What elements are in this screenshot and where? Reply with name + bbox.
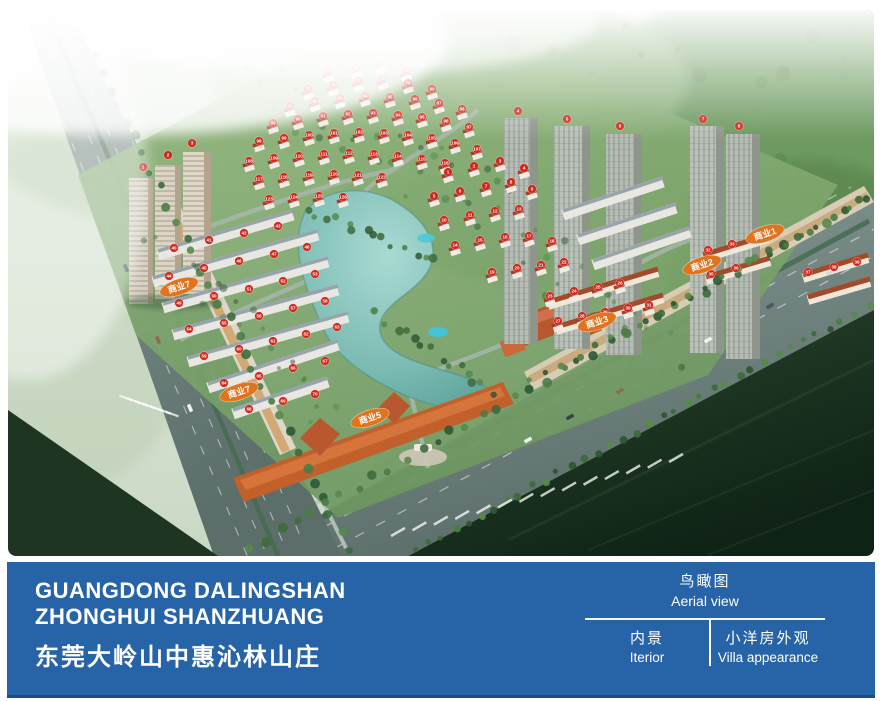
project-title-chinese: 东莞大岭山中惠沁林山庄 [35, 637, 346, 672]
svg-text:38: 38 [831, 265, 837, 270]
svg-text:2: 2 [473, 164, 476, 169]
svg-text:13: 13 [516, 207, 522, 212]
svg-text:59: 59 [201, 354, 207, 359]
tab-interior: 内景 Iterior [585, 620, 711, 666]
svg-text:24: 24 [571, 289, 577, 294]
project-title-line2: ZHONGHUI SHANZHUANG [35, 604, 346, 630]
svg-text:106: 106 [451, 141, 459, 146]
svg-text:55: 55 [221, 321, 227, 326]
caption-banner: GUANGDONG DALINGSHAN ZHONGHUI SHANZHUANG… [7, 562, 875, 698]
divider-line [585, 618, 825, 620]
svg-text:30: 30 [625, 306, 631, 311]
svg-text:61: 61 [270, 339, 276, 344]
svg-text:40: 40 [171, 246, 177, 251]
svg-text:42: 42 [241, 231, 247, 236]
svg-text:70: 70 [312, 392, 318, 397]
svg-text:117: 117 [255, 177, 263, 182]
svg-text:113: 113 [370, 152, 378, 157]
svg-text:26: 26 [617, 281, 623, 286]
svg-text:63: 63 [334, 325, 340, 330]
svg-text:52: 52 [280, 279, 286, 284]
svg-text:111: 111 [320, 152, 328, 157]
project-title-block: GUANGDONG DALINGSHAN ZHONGHUI SHANZHUANG… [35, 578, 346, 672]
svg-text:56: 56 [256, 314, 262, 319]
svg-text:120: 120 [330, 172, 338, 177]
svg-text:7: 7 [485, 184, 488, 189]
svg-text:110: 110 [295, 154, 303, 159]
svg-text:116: 116 [441, 161, 449, 166]
svg-text:25: 25 [595, 285, 601, 290]
svg-text:6: 6 [459, 189, 462, 194]
svg-text:5: 5 [433, 194, 436, 199]
svg-text:50: 50 [211, 294, 217, 299]
svg-text:107: 107 [473, 147, 481, 152]
svg-text:9: 9 [531, 187, 534, 192]
page: 1234567891011121314151617181920212223242… [0, 0, 882, 701]
svg-text:65: 65 [256, 374, 262, 379]
svg-text:51: 51 [246, 287, 252, 292]
svg-text:58: 58 [322, 299, 328, 304]
svg-text:68: 68 [246, 407, 252, 412]
svg-text:45: 45 [201, 266, 207, 271]
svg-text:109: 109 [270, 156, 278, 161]
tab-interior-cn: 内景 [585, 629, 709, 649]
project-title-line1: GUANGDONG DALINGSHAN [35, 578, 346, 604]
svg-text:67: 67 [322, 359, 328, 364]
svg-text:64: 64 [221, 381, 227, 386]
view-tabs: 内景 Iterior 小洋房外观 Villa appearance [585, 620, 825, 666]
svg-text:47: 47 [271, 252, 277, 257]
svg-text:14: 14 [452, 243, 458, 248]
svg-text:54: 54 [186, 327, 192, 332]
svg-text:108: 108 [245, 159, 253, 164]
svg-text:17: 17 [526, 234, 532, 239]
svg-text:119: 119 [305, 173, 313, 178]
svg-text:57: 57 [290, 306, 296, 311]
svg-text:12: 12 [492, 209, 498, 214]
svg-text:33: 33 [729, 242, 735, 247]
svg-text:27: 27 [555, 319, 561, 324]
svg-text:112: 112 [345, 151, 353, 156]
tab-villa-appearance: 小洋房外观 Villa appearance [711, 620, 825, 666]
aerial-view-image: 1234567891011121314151617181920212223242… [8, 10, 874, 556]
svg-text:32: 32 [705, 248, 711, 253]
svg-text:35: 35 [708, 272, 714, 277]
svg-text:19: 19 [489, 270, 495, 275]
tab-villa-en: Villa appearance [711, 649, 825, 666]
aerial-photo-frame: 1234567891011121314151617181920212223242… [8, 10, 874, 556]
svg-text:49: 49 [176, 301, 182, 306]
svg-text:1: 1 [447, 170, 450, 175]
svg-text:46: 46 [236, 259, 242, 264]
svg-text:122: 122 [378, 175, 386, 180]
svg-text:2: 2 [167, 153, 170, 158]
svg-text:23: 23 [547, 294, 553, 299]
svg-text:125: 125 [315, 194, 323, 199]
svg-text:123: 123 [265, 197, 273, 202]
svg-text:69: 69 [280, 399, 286, 404]
svg-text:15: 15 [477, 238, 483, 243]
swimming-pool [428, 327, 448, 337]
svg-text:124: 124 [290, 195, 298, 200]
svg-text:3: 3 [191, 141, 194, 146]
svg-text:43: 43 [275, 224, 281, 229]
svg-text:20: 20 [514, 266, 520, 271]
svg-text:115: 115 [418, 157, 426, 162]
svg-text:10: 10 [441, 218, 447, 223]
svg-text:118: 118 [280, 175, 288, 180]
svg-text:4: 4 [523, 166, 526, 171]
svg-text:53: 53 [312, 272, 318, 277]
svg-text:8: 8 [510, 180, 513, 185]
svg-text:66: 66 [290, 366, 296, 371]
tab-interior-en: Iterior [585, 649, 709, 666]
pool-upper [417, 234, 435, 243]
svg-text:36: 36 [733, 266, 739, 271]
svg-text:37: 37 [805, 270, 811, 275]
svg-text:31: 31 [646, 303, 652, 308]
svg-text:18: 18 [549, 239, 555, 244]
svg-text:28: 28 [579, 314, 585, 319]
svg-text:60: 60 [236, 347, 242, 352]
svg-text:48: 48 [304, 245, 310, 250]
svg-text:21: 21 [538, 263, 544, 268]
svg-text:114: 114 [394, 154, 402, 159]
svg-text:11: 11 [468, 213, 473, 218]
svg-text:22: 22 [561, 260, 567, 265]
svg-text:126: 126 [339, 195, 347, 200]
tab-villa-cn: 小洋房外观 [711, 629, 825, 649]
svg-text:62: 62 [303, 332, 309, 337]
view-selector-block: 鸟瞰图 Aerial view 内景 Iterior 小洋房外观 Villa a… [585, 572, 825, 666]
svg-text:39: 39 [854, 260, 860, 265]
current-view-label-cn: 鸟瞰图 [585, 572, 825, 592]
svg-text:41: 41 [206, 238, 212, 243]
svg-text:3: 3 [499, 159, 502, 164]
svg-text:44: 44 [166, 274, 172, 279]
current-view-label-en: Aerial view [585, 592, 825, 610]
svg-text:16: 16 [502, 235, 508, 240]
svg-text:121: 121 [354, 173, 362, 178]
